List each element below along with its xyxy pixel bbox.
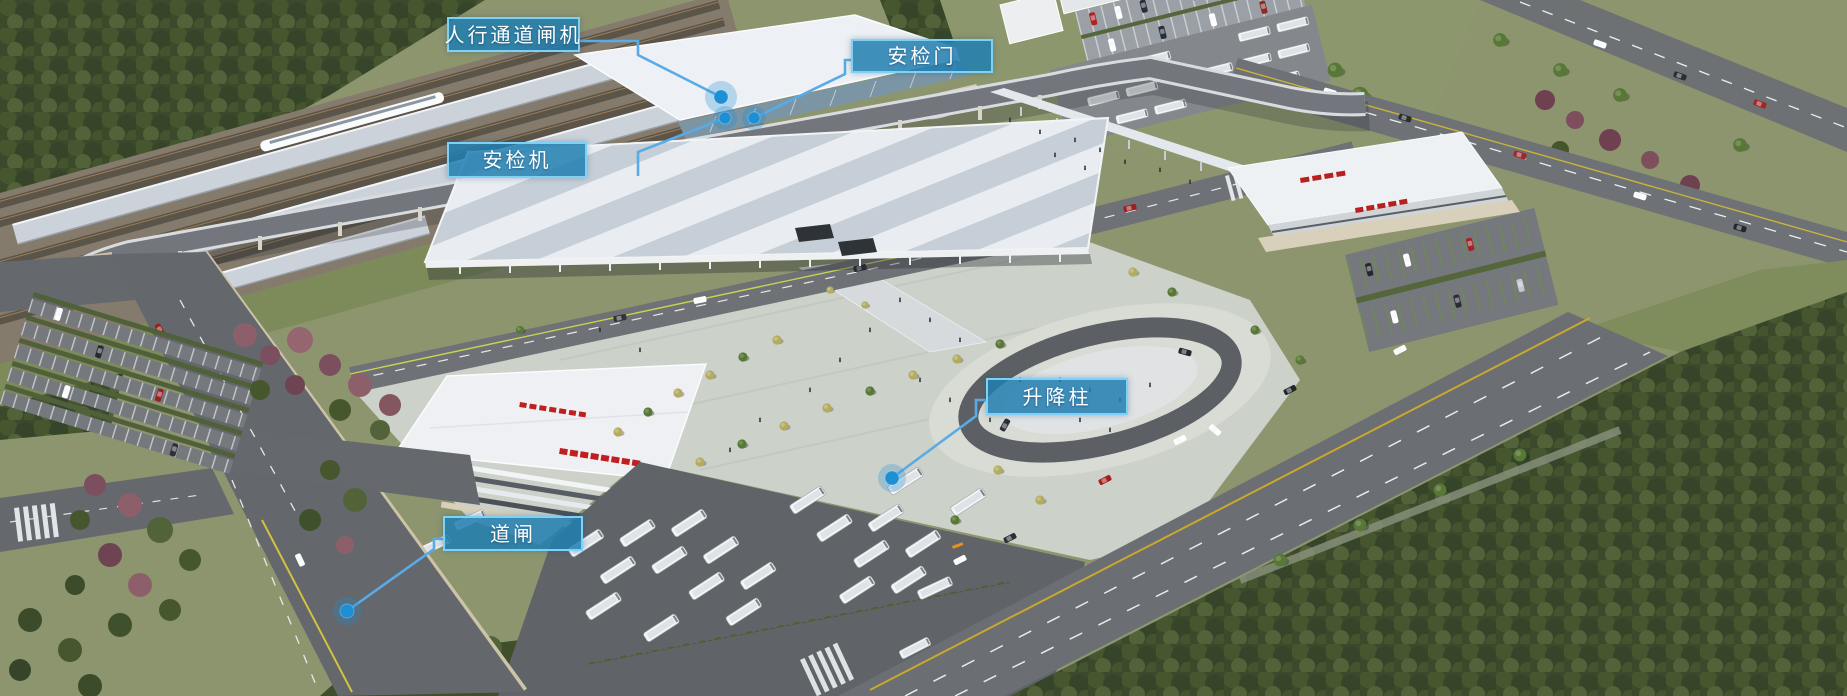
callout-label-pedestrian-channel-gate: 人行通道闸机 xyxy=(447,17,580,52)
aerial-scene xyxy=(0,0,1847,696)
callout-label-security-door: 安检门 xyxy=(851,39,993,73)
callout-label-road-barrier-gate: 道闸 xyxy=(443,516,583,551)
annotated-aerial-rendering: 人行通道闸机 安检门 安检机 升降柱 道闸 xyxy=(0,0,1847,696)
callout-label-security-scanner: 安检机 xyxy=(447,142,587,178)
callout-label-lifting-bollard: 升降柱 xyxy=(986,378,1128,415)
